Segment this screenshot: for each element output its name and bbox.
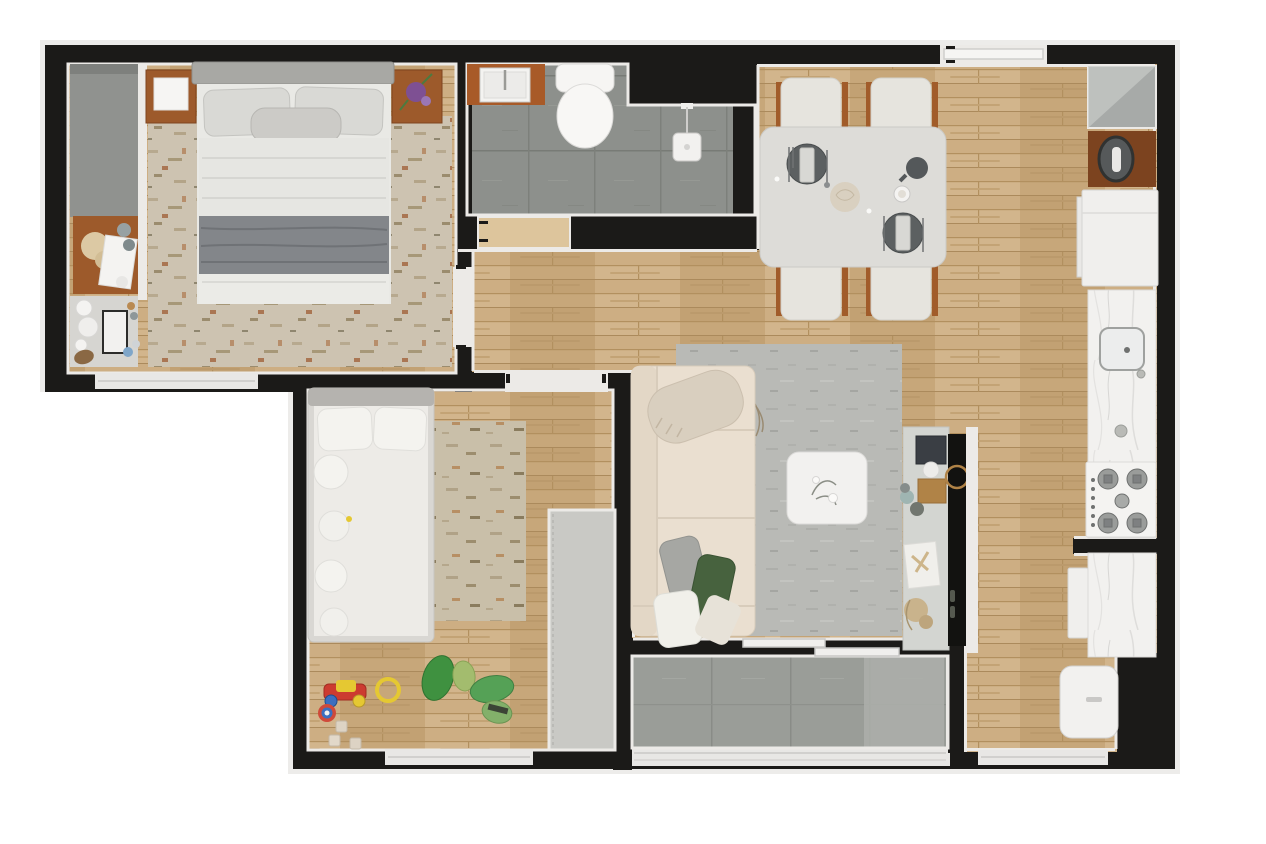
kids-pillow [317, 407, 373, 452]
balcony-mat [864, 657, 944, 747]
crochet-cushion [314, 455, 348, 489]
wall-bathroom-shaft [628, 45, 734, 105]
floor-plan-page: Top-down 3D rendered floor plan of a two… [0, 0, 1266, 844]
car-wheel [353, 695, 365, 707]
flower-vase [421, 96, 431, 106]
console-box [918, 479, 946, 503]
car-cab [336, 680, 356, 692]
decor-bottle [132, 340, 140, 348]
dried-plant [919, 615, 933, 629]
cup-inner [898, 190, 906, 198]
wall-kitchen-jog [1073, 538, 1157, 554]
console-trinket [910, 502, 924, 516]
decor-sphere [123, 239, 135, 251]
lumbar-pillow [251, 108, 341, 142]
room-master-bedroom [70, 62, 452, 367]
burner-small [1115, 494, 1129, 508]
decor-plate [78, 317, 98, 337]
closet-shadow [70, 64, 138, 74]
balcony-sliding-door-panel [743, 639, 825, 647]
decor-sphere [117, 223, 131, 237]
kitchen-sink [1100, 328, 1144, 370]
sink-drain [1124, 347, 1130, 353]
door-jamb-mark [946, 60, 955, 63]
balcony-sliding-door-panel [815, 648, 899, 656]
burner-cap [1104, 519, 1112, 527]
decor-bottle [127, 302, 135, 310]
toy-block [329, 735, 340, 746]
panel-handle [950, 590, 955, 602]
console-trinket [900, 483, 910, 493]
wall-balcony-right [948, 638, 966, 753]
partition-wall [966, 427, 978, 653]
door-jamb-mark [456, 345, 466, 349]
burner-cap [1133, 519, 1141, 527]
crochet-cushion [320, 608, 348, 636]
panel-handle [950, 606, 955, 618]
bed-foot [199, 274, 389, 304]
door-jamb-mark [946, 46, 955, 49]
basin-detail [1112, 147, 1121, 172]
sparkle [775, 177, 780, 182]
crochet-cushion [319, 511, 349, 541]
washer-handle [1086, 697, 1102, 702]
table-cup [829, 494, 838, 503]
console-books [916, 436, 946, 464]
closet-niche [70, 64, 138, 217]
napkin [800, 148, 814, 182]
door-jamb-mark [479, 239, 488, 242]
door-jamb-mark [456, 265, 466, 269]
table-cup [813, 477, 820, 484]
bead-decor [346, 516, 352, 522]
disc-center [325, 711, 330, 716]
teapot [906, 157, 928, 179]
coffee-table [787, 452, 867, 524]
kids-rug [430, 421, 526, 621]
door-jamb-mark [479, 221, 488, 224]
bathroom-door-opening [478, 217, 570, 248]
kids-door-opening [505, 370, 608, 392]
centerpiece [830, 182, 860, 212]
dishwasher-front [1068, 568, 1088, 638]
refrigerator [1082, 190, 1158, 286]
bedroom-door-opening [453, 267, 474, 347]
burner-cap [1104, 475, 1112, 483]
wall-corner-shaft [1117, 653, 1175, 767]
lower-counter [1088, 553, 1156, 657]
cushion-white [652, 589, 703, 649]
balcony-glass-railing [630, 748, 950, 766]
decor-tray [103, 311, 127, 353]
bed-headboard [192, 62, 394, 84]
door-jamb-mark [506, 374, 510, 383]
decor-bottle [130, 312, 138, 320]
towel [154, 78, 188, 110]
toy-disc [318, 704, 336, 722]
toy-block [350, 738, 361, 749]
decor-plate [76, 300, 92, 316]
burner-cap [1133, 475, 1141, 483]
decor-sphere [116, 276, 128, 288]
toy-block [336, 721, 347, 732]
decor-bottle [123, 347, 133, 357]
wardrobe [549, 510, 615, 750]
sparkle [867, 209, 872, 214]
kids-pillow [373, 407, 427, 452]
toilet [557, 84, 613, 148]
door-jamb-mark [602, 374, 606, 383]
soap-dispenser [1115, 425, 1127, 437]
crochet-cushion [315, 560, 347, 592]
floor-plan: Top-down 3D rendered floor plan of a two… [0, 0, 1266, 844]
napkin [896, 216, 910, 250]
shower-drain [684, 144, 690, 150]
decor-plate [75, 339, 87, 351]
spoon-head [824, 182, 830, 188]
sink-faucet [1137, 370, 1145, 378]
console-vase [923, 462, 939, 478]
kids-headboard [308, 388, 434, 406]
entry-sliding-door [944, 49, 1043, 59]
